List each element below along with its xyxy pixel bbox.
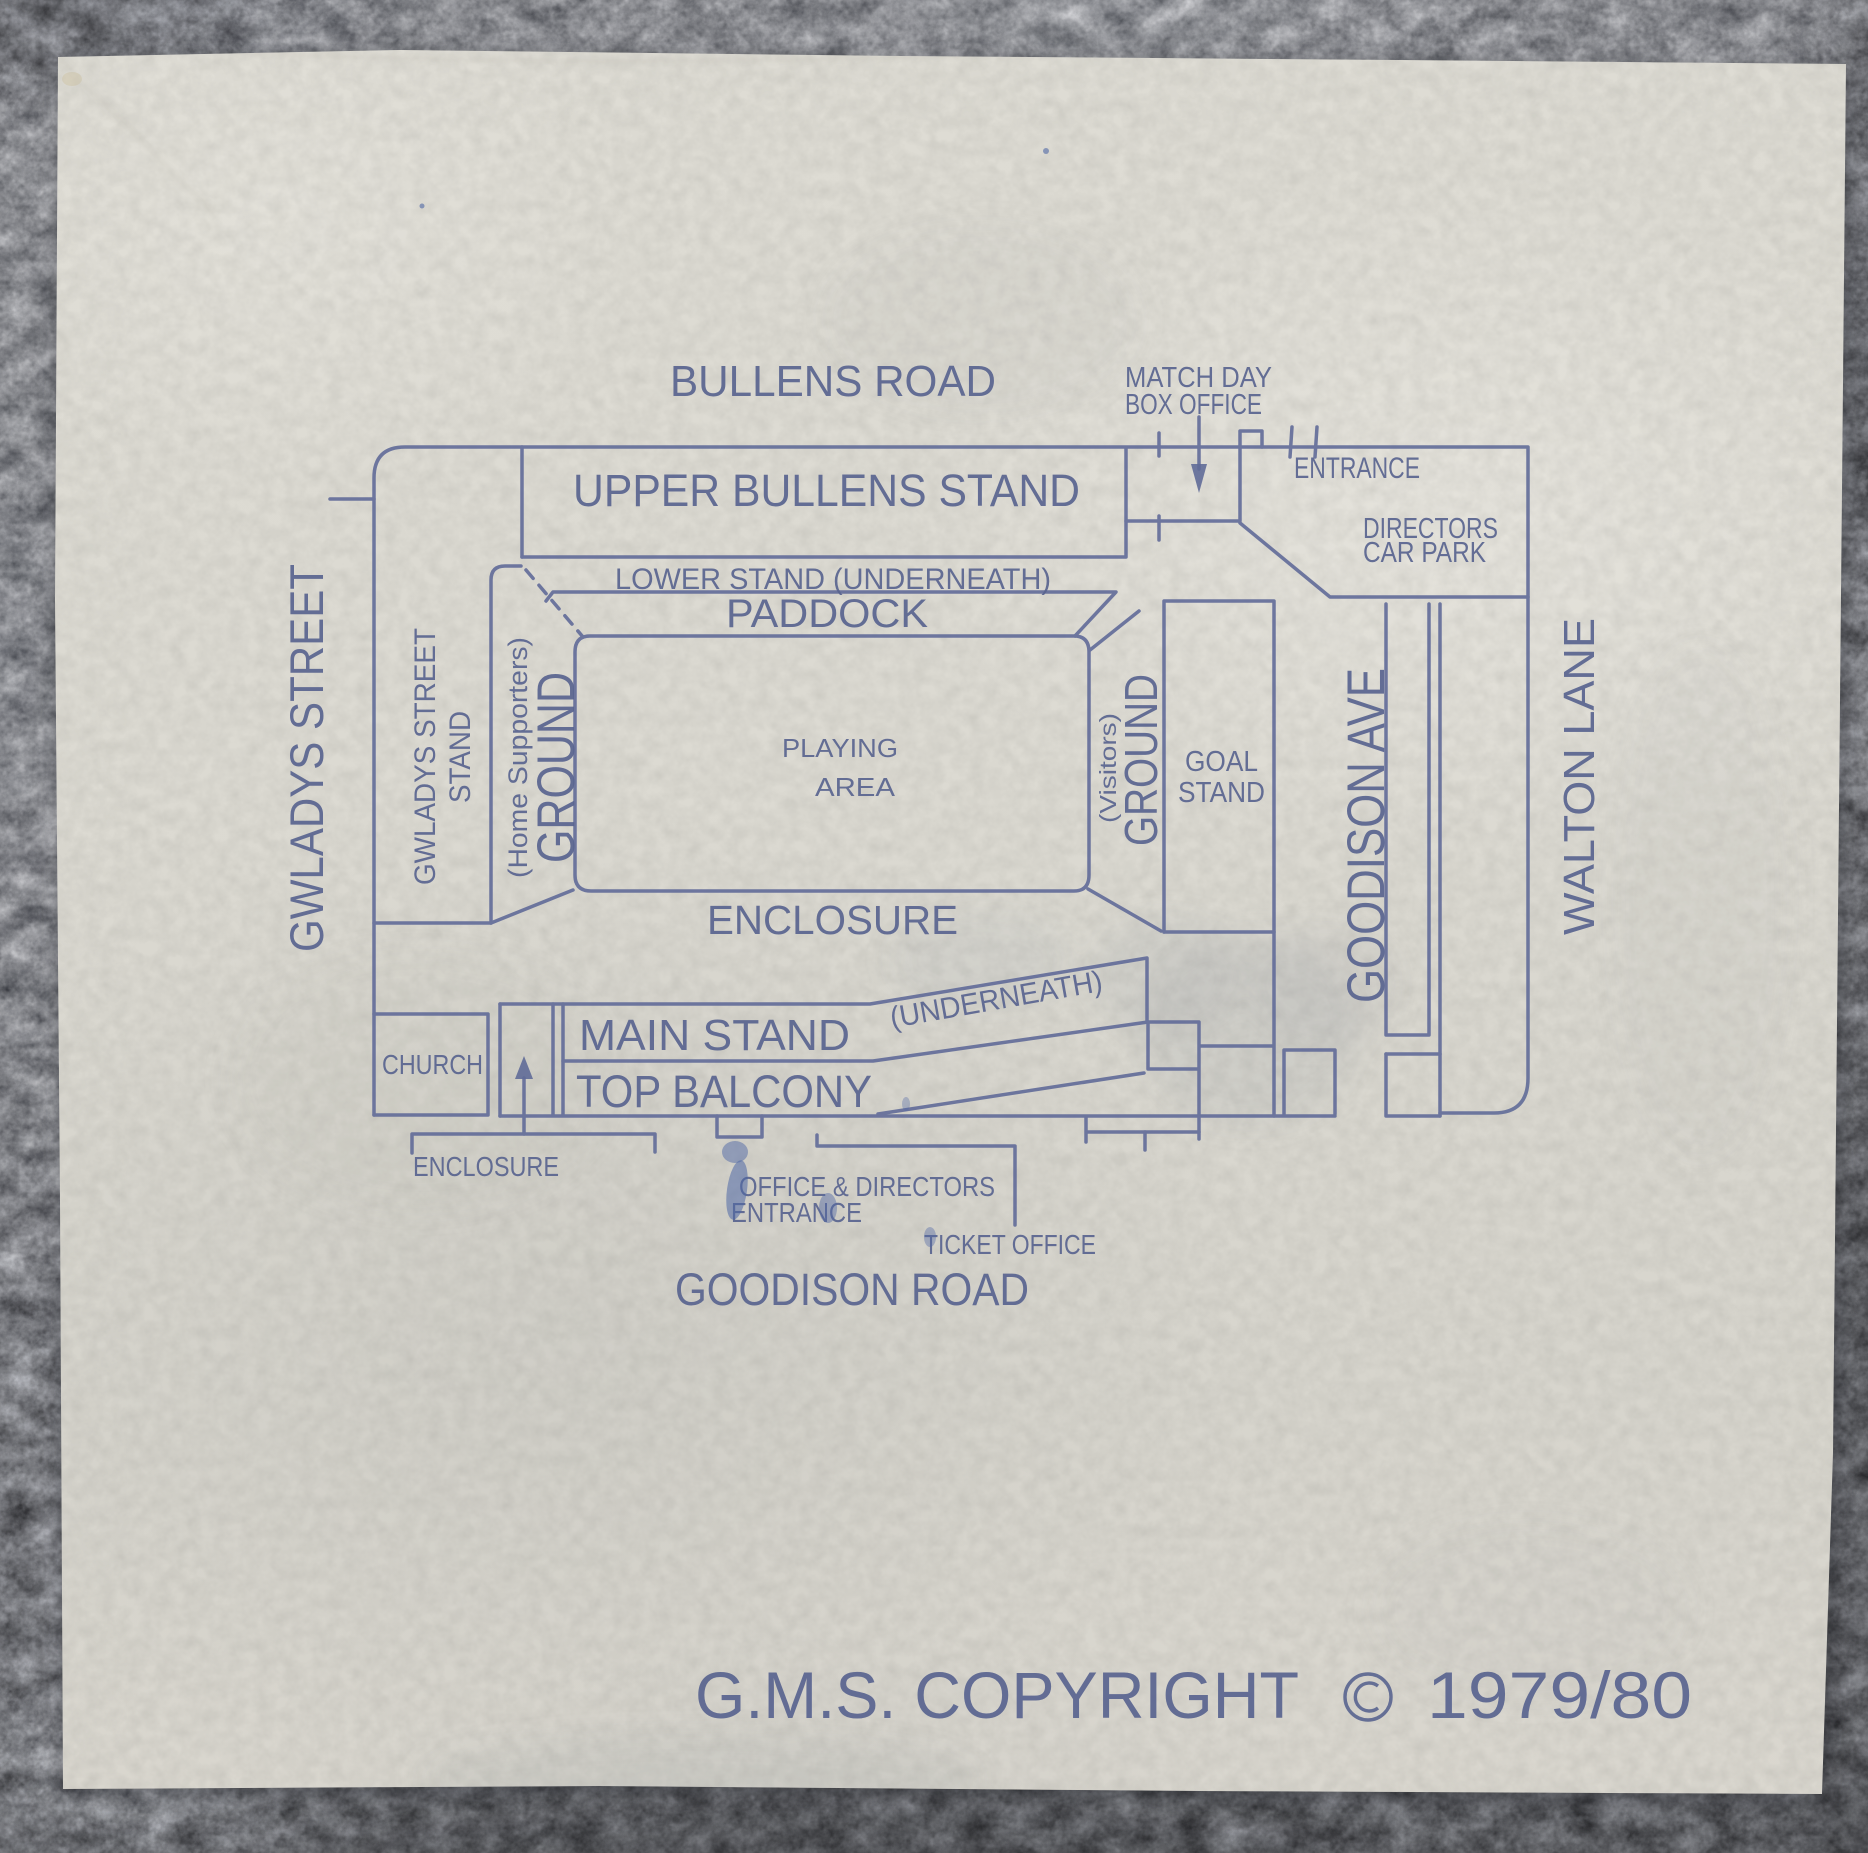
svg-text:BOX OFFICE: BOX OFFICE [1125,389,1262,421]
svg-text:GROUND: GROUND [527,672,586,863]
svg-text:GOODISON AVE: GOODISON AVE [1337,668,1396,1003]
svg-text:1979/80: 1979/80 [1427,1658,1692,1732]
svg-text:ENTRANCE: ENTRANCE [731,1197,862,1228]
svg-text:WALTON LANE: WALTON LANE [1555,618,1604,935]
svg-text:ENTRANCE: ENTRANCE [1294,452,1420,485]
svg-text:TOP BALCONY: TOP BALCONY [576,1066,872,1117]
svg-text:G.M.S. COPYRIGHT: G.M.S. COPYRIGHT [695,1658,1299,1732]
svg-text:ENCLOSURE: ENCLOSURE [413,1151,559,1182]
svg-text:PLAYING: PLAYING [782,733,898,763]
svg-text:CHURCH: CHURCH [382,1049,483,1080]
svg-text:GOODISON ROAD: GOODISON ROAD [675,1264,1029,1315]
svg-text:STAND: STAND [1178,777,1265,809]
svg-text:ENCLOSURE: ENCLOSURE [707,897,958,943]
svg-text:GWLADYS STREET: GWLADYS STREET [409,628,442,885]
svg-text:GROUND: GROUND [1115,674,1167,846]
svg-text:AREA: AREA [815,772,896,802]
svg-text:PADDOCK: PADDOCK [726,592,928,636]
svg-text:UPPER BULLENS STAND: UPPER BULLENS STAND [573,465,1080,516]
svg-text:GWLADYS STREET: GWLADYS STREET [280,564,333,952]
svg-text:MAIN STAND: MAIN STAND [579,1011,850,1060]
svg-text:STAND: STAND [444,711,477,803]
svg-text:TICKET OFFICE: TICKET OFFICE [924,1229,1096,1260]
svg-text:BULLENS ROAD: BULLENS ROAD [670,357,996,406]
svg-text:GOAL: GOAL [1185,746,1258,778]
svg-text:CAR PARK: CAR PARK [1363,537,1487,569]
svg-text:(UNDERNEATH): (UNDERNEATH) [887,965,1104,1035]
